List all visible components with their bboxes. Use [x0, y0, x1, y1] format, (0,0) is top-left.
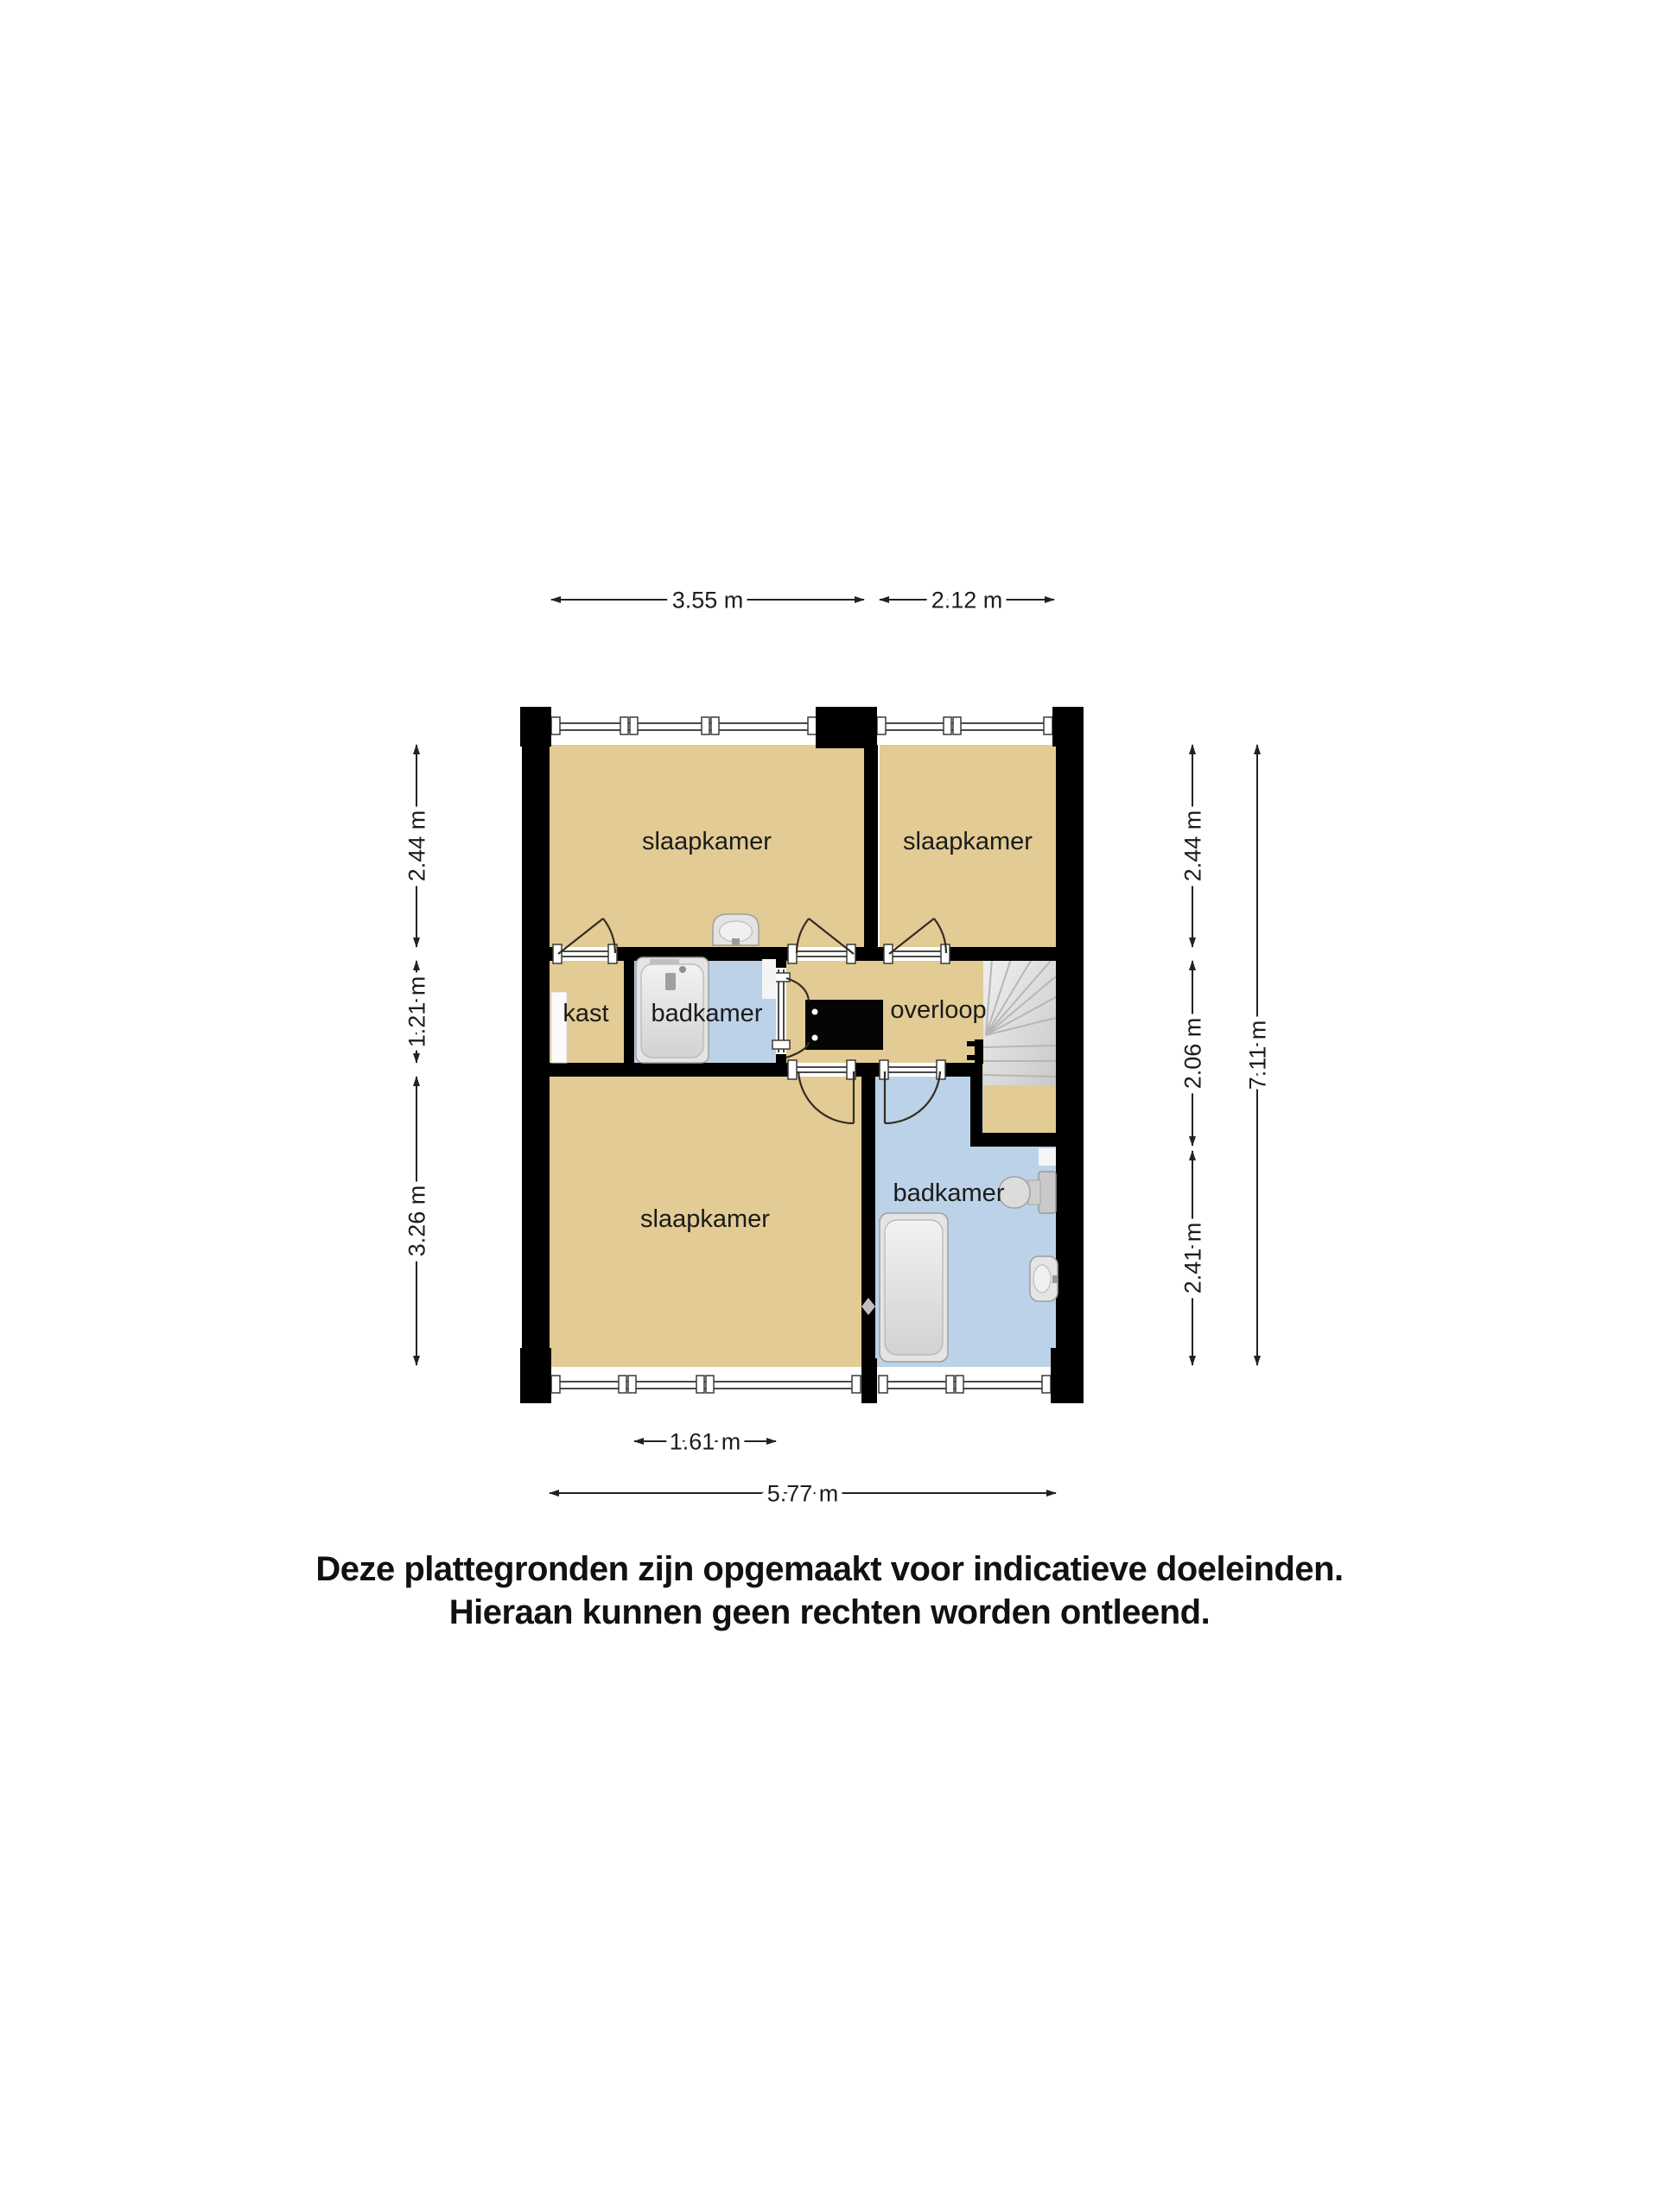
bathtub-bottom — [880, 1213, 948, 1362]
label-bathroom-middle: badkamer — [652, 1000, 763, 1027]
svg-text:5.77 m: 5.77 m — [767, 1480, 839, 1506]
pier-top-middle — [816, 707, 877, 748]
label-bedroom-bottom: slaapkamer — [640, 1205, 770, 1233]
dim-left-top: 2.44 m — [404, 745, 429, 947]
dim-top-right: 2.12 m — [880, 587, 1054, 613]
disclaimer-line-1: Deze plattegronden zijn opgemaakt voor i… — [315, 1550, 1343, 1588]
dim-left-bottom: 3.26 m — [404, 1077, 429, 1365]
bathroom-bottom-doorway — [880, 1060, 945, 1079]
svg-text:3.55 m: 3.55 m — [672, 587, 744, 613]
wall-right — [1056, 707, 1084, 1403]
staircase — [983, 957, 1056, 1139]
floorplan-canvas: slaapkamer slaapkamer kast badkamer over… — [0, 0, 1659, 2212]
svg-text:3.26 m: 3.26 m — [404, 1185, 429, 1257]
wall-between-top-bedrooms — [864, 745, 878, 947]
svg-text:2.06 m: 2.06 m — [1179, 1018, 1205, 1090]
label-bedroom-top-right: slaapkamer — [903, 828, 1033, 855]
bedroom-sink — [713, 914, 759, 945]
bathroom-middle-shelf — [762, 959, 776, 999]
corner-bottom-left — [520, 1348, 551, 1403]
label-landing: overloop — [890, 996, 986, 1024]
closet-doorway — [553, 944, 617, 963]
bedroom-top-right-doorway — [884, 944, 950, 963]
dim-bottom-total: 5.77 m — [550, 1480, 1056, 1506]
corner-bottom-right — [1051, 1348, 1084, 1403]
dim-left-middle: 1.21 m — [404, 961, 429, 1063]
label-closet: kast — [563, 1000, 608, 1027]
corner-top-left — [520, 707, 551, 747]
stair-pocket-floor — [983, 1085, 1056, 1139]
stair-pocket-shelf — [1039, 1148, 1056, 1166]
wall-bottom-bedroom-bathroom — [861, 1075, 875, 1367]
svg-text:2.41 m: 2.41 m — [1179, 1223, 1205, 1294]
dim-right-top: 2.44 m — [1179, 745, 1205, 947]
dim-right-middle: 2.06 m — [1179, 961, 1205, 1146]
svg-text:1.61 m: 1.61 m — [670, 1428, 741, 1454]
wall-closet-bathroom — [624, 961, 634, 1063]
corner-top-right — [1052, 707, 1084, 747]
disclaimer-line-2: Hieraan kunnen geen rechten worden ontle… — [449, 1593, 1210, 1631]
wall-left — [522, 707, 550, 1403]
dim-right-bottom: 2.41 m — [1179, 1151, 1205, 1365]
wall-stair-pocket-bottom — [970, 1133, 1056, 1147]
svg-text:2.12 m: 2.12 m — [931, 587, 1003, 613]
svg-text:2.44 m: 2.44 m — [1179, 810, 1205, 882]
label-bathroom-bottom: badkamer — [893, 1179, 1005, 1207]
label-bedroom-top-left: slaapkamer — [642, 828, 772, 855]
dim-right-total: 7.11 m — [1244, 745, 1270, 1365]
chimney-shaft — [805, 1000, 883, 1050]
svg-text:2.44 m: 2.44 m — [404, 810, 429, 882]
bathroom-bottom-sink — [1030, 1256, 1058, 1301]
dim-bottom-inner: 1.61 m — [634, 1428, 776, 1454]
svg-text:1.21 m: 1.21 m — [404, 976, 429, 1048]
dim-top-left: 3.55 m — [551, 587, 864, 613]
svg-text:7.11 m: 7.11 m — [1244, 1020, 1270, 1090]
disclaimer: Deze plattegronden zijn opgemaakt voor i… — [315, 1550, 1343, 1631]
